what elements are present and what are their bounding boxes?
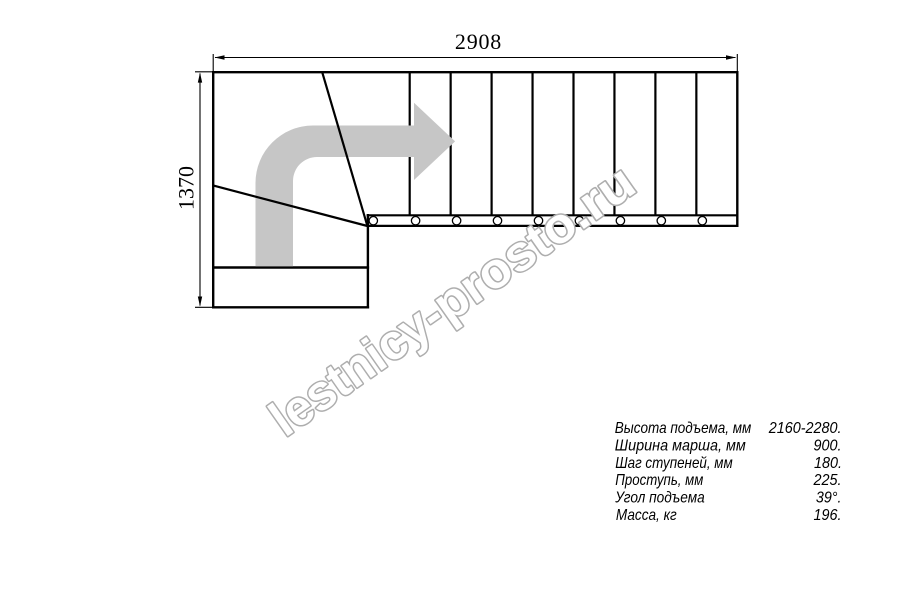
svg-text:Ширина марша, мм: Ширина марша, мм [615,437,746,454]
svg-text:2908: 2908 [455,29,502,54]
svg-text:1370: 1370 [174,166,199,210]
svg-text:2160-2280.: 2160-2280. [768,420,842,437]
svg-text:196.: 196. [814,507,842,524]
svg-text:Угол подъема: Угол подъема [614,490,704,507]
svg-text:180.: 180. [814,455,842,472]
svg-text:Шаг ступеней, мм: Шаг ступеней, мм [615,455,732,472]
svg-text:Высота подъема, мм: Высота подъема, мм [615,420,752,437]
svg-text:900.: 900. [814,437,842,454]
svg-text:225.: 225. [813,472,842,489]
svg-text:Проступь, мм: Проступь, мм [615,472,703,489]
svg-text:39°.: 39°. [816,490,842,507]
svg-text:Масса, кг: Масса, кг [616,507,677,524]
